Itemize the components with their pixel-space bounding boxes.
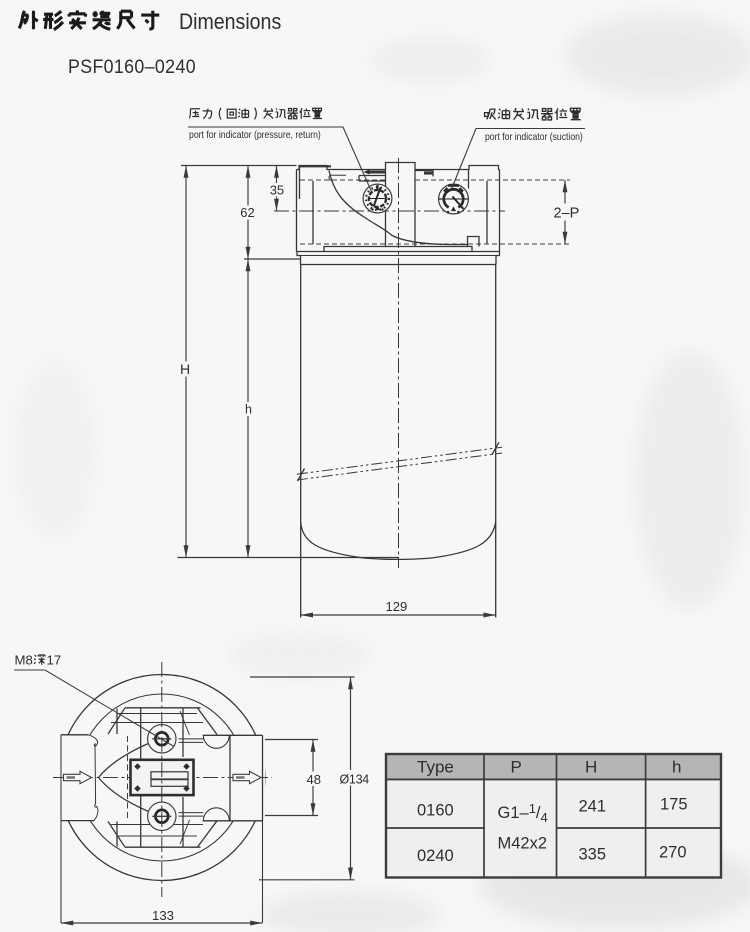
svg-text:M8: M8 (15, 653, 33, 668)
svg-text:Ø134: Ø134 (340, 773, 370, 787)
svg-text:Dimensions: Dimensions (179, 10, 281, 34)
svg-text:H: H (585, 758, 597, 777)
svg-text:129: 129 (386, 599, 408, 614)
svg-text:M42x2: M42x2 (498, 835, 548, 853)
svg-text:175: 175 (660, 796, 688, 814)
svg-text:335: 335 (579, 846, 607, 864)
svg-text:G1–1/4: G1–1/4 (498, 801, 548, 825)
svg-text:P: P (511, 758, 522, 777)
svg-text:h: h (245, 403, 252, 417)
svg-text:Type: Type (417, 758, 454, 777)
svg-text:port for indicator (pressure,: port for indicator (pressure, return) (189, 129, 321, 140)
svg-text:62: 62 (240, 205, 254, 220)
svg-text:H: H (180, 361, 190, 377)
svg-text:PSF0160–0240: PSF0160–0240 (68, 55, 196, 77)
svg-text:133: 133 (152, 908, 174, 923)
svg-text:17: 17 (47, 653, 62, 668)
svg-text:241: 241 (579, 798, 607, 816)
svg-text:0160: 0160 (417, 802, 454, 820)
svg-text:h: h (672, 758, 681, 777)
svg-text:270: 270 (659, 844, 687, 862)
svg-text:port for indicator (suction): port for indicator (suction) (485, 131, 583, 142)
svg-text:35: 35 (270, 183, 284, 198)
svg-text:48: 48 (307, 772, 321, 787)
svg-text:0240: 0240 (417, 847, 454, 865)
svg-text:2–P: 2–P (554, 206, 580, 222)
